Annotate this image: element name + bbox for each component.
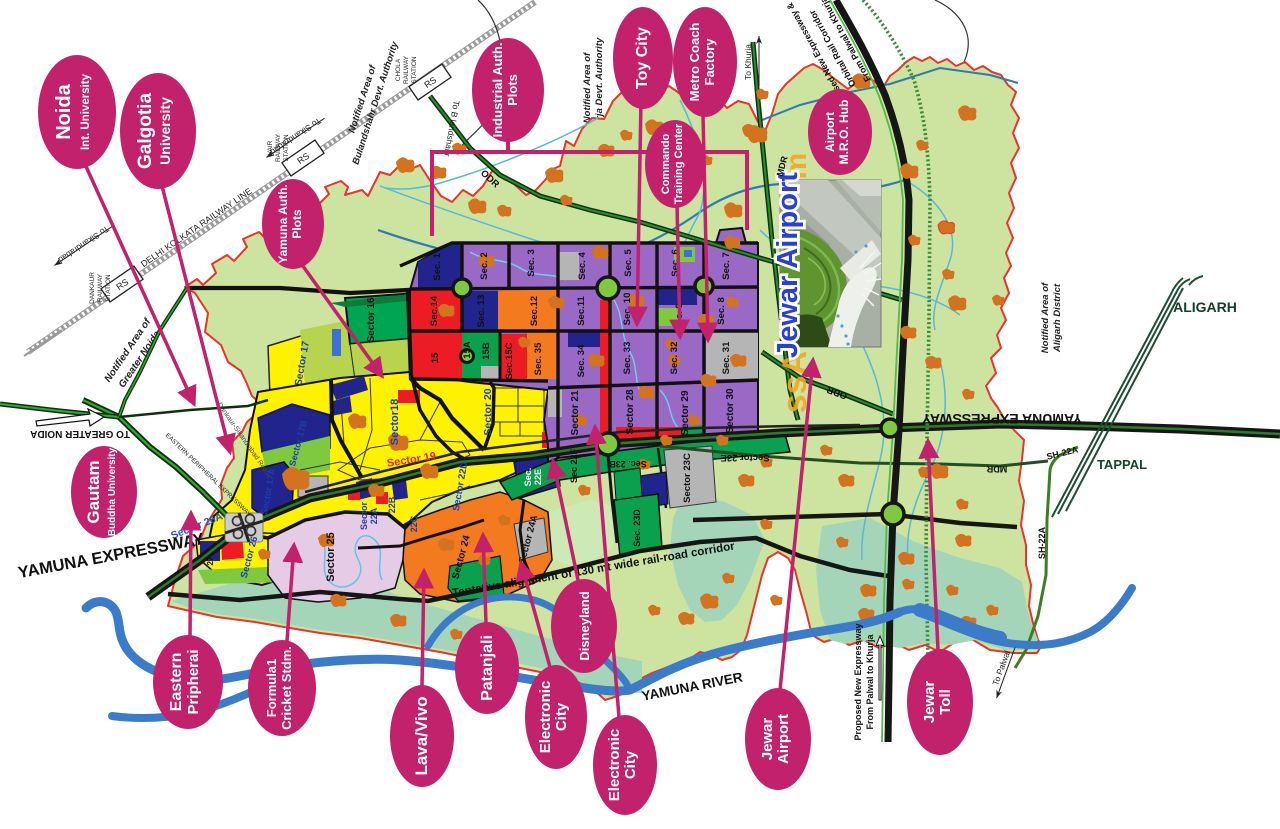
svg-text:22E: 22E [533,469,543,485]
svg-text:22A: 22A [369,507,379,524]
svg-text:Sec. 2: Sec. 2 [479,252,490,279]
svg-text:22C: 22C [409,515,419,532]
svg-text:27: 27 [206,556,215,565]
svg-text:Sector: Sector [359,501,369,530]
svg-text:Noida: Noida [53,83,75,139]
svg-text:Toy City: Toy City [634,27,651,89]
svg-text:M.R.O. Hub: M.R.O. Hub [837,100,851,165]
svg-text:Cricket Stdm.: Cricket Stdm. [279,646,294,730]
svg-text:University: University [157,97,173,165]
svg-text:Int. University: Int. University [80,73,92,150]
svg-text:ALIGARH: ALIGARH [1173,299,1237,315]
svg-text:Patanjali: Patanjali [479,635,496,701]
svg-text:15B: 15B [481,342,492,360]
svg-text:Sec.14: Sec.14 [429,295,440,326]
svg-text:Sector18: Sector18 [389,399,401,445]
svg-text:TO GREATER NOIDA: TO GREATER NOIDA [30,428,130,439]
svg-text:Sec. 32: Sec. 32 [669,342,680,375]
svg-text:Sec. 8: Sec. 8 [716,297,727,324]
svg-text:CHOLA: CHOLA [395,58,402,81]
svg-text:Pripherai: Pripherai [185,649,202,714]
svg-text:Notified Area of: Notified Area of [1040,282,1051,353]
svg-text:Sec. 4: Sec. 4 [577,252,588,280]
svg-text:Sec. 5: Sec. 5 [623,249,634,277]
svg-text:Sec.11: Sec.11 [576,295,587,325]
svg-text:Sec. 33: Sec. 33 [622,342,633,375]
svg-text:Eastern: Eastern [168,653,185,712]
svg-text:SH-22A: SH-22A [1037,526,1047,559]
svg-text:22B: 22B [387,496,397,513]
svg-text:City: City [622,750,639,779]
svg-text:City: City [553,702,570,731]
svg-text:15A: 15A [462,341,473,359]
svg-text:Sec. 7: Sec. 7 [721,252,732,279]
svg-text:MDR: MDR [986,464,1007,474]
svg-text:Proposed New Expressway: Proposed New Expressway [853,623,863,740]
svg-text:Lava/Vivo: Lava/Vivo [412,696,431,775]
svg-text:Sec. 1: Sec. 1 [432,253,443,281]
svg-text:Factory: Factory [702,38,717,86]
svg-text:Training Center: Training Center [673,123,685,204]
svg-text:Sector 20: Sector 20 [482,388,494,435]
svg-text:Sec. 10: Sec. 10 [622,293,633,326]
svg-text:Airport: Airport [823,112,837,152]
svg-text:Sec. 3: Sec. 3 [526,249,537,276]
svg-text:Buddha University: Buddha University [107,447,118,536]
svg-text:STATION: STATION [105,274,112,302]
svg-text:Jewar: Jewar [759,718,776,761]
svg-text:Sec. 34: Sec. 34 [576,344,587,377]
svg-text:Sector 30: Sector 30 [725,388,736,433]
svg-text:Notified Area of: Notified Area of [582,52,593,123]
svg-text:Galgotia: Galgotia [135,93,156,169]
svg-text:Sector 23C: Sector 23C [682,453,693,503]
svg-text:DANKAUR: DANKAUR [89,272,96,304]
svg-text:Airport: Airport [775,714,792,764]
svg-text:STATION: STATION [411,56,418,84]
svg-text:Sec.: Sec. [523,468,533,487]
svg-text:To Khurja: To Khurja [743,44,753,80]
svg-text:RAILWAY: RAILWAY [403,55,410,84]
svg-text:Sector 25: Sector 25 [325,532,337,582]
svg-text:Yamuna Auth.: Yamuna Auth. [276,184,290,264]
svg-text:Sec. 31: Sec. 31 [721,341,732,374]
svg-text:Plots: Plots [505,74,520,106]
svg-text:Sector 29: Sector 29 [680,390,691,435]
svg-text:From Palwal to Khurja: From Palwal to Khurja [865,633,875,729]
svg-text:Sec.12: Sec.12 [529,296,540,326]
svg-text:Sec. 23B: Sec. 23B [609,459,647,469]
svg-text:Sector 23E: Sector 23E [720,452,769,463]
svg-text:Disneyland: Disneyland [577,591,592,660]
svg-text:Gautam: Gautam [84,460,103,523]
svg-text:Sec.15C: Sec.15C [504,342,515,379]
svg-text:Electronic: Electronic [606,729,623,802]
svg-text:Sec. 35: Sec. 35 [533,342,544,375]
svg-text:Sector 21: Sector 21 [570,390,581,435]
svg-text:Sec 22F: Sec 22F [569,448,579,483]
svg-text:YAMUNA EXPRESSWAY: YAMUNA EXPRESSWAY [921,411,1082,427]
svg-text:Electronic: Electronic [537,681,554,754]
svg-text:RAILWAY: RAILWAY [97,273,104,302]
svg-text:Jewar: Jewar [921,681,938,724]
svg-text:Sec. 13: Sec. 13 [476,295,487,328]
svg-text:Metro Coach: Metro Coach [687,23,702,102]
svg-text:Commando: Commando [660,133,672,194]
svg-text:Jewar Airport: Jewar Airport [772,172,804,358]
svg-text:Formula1: Formula1 [264,659,279,718]
svg-text:Plots: Plots [290,209,304,239]
svg-text:Industrial Auth.: Industrial Auth. [490,43,505,138]
svg-text:15: 15 [430,352,441,363]
svg-text:TAPPAL: TAPPAL [1097,457,1147,472]
svg-text:Sector 16: Sector 16 [366,297,377,342]
svg-text:Toll: Toll [937,689,954,715]
svg-text:Sector 28: Sector 28 [625,389,636,434]
svg-text:Aligarh District: Aligarh District [1052,283,1063,353]
svg-text:Sec. 23D: Sec. 23D [632,509,642,547]
